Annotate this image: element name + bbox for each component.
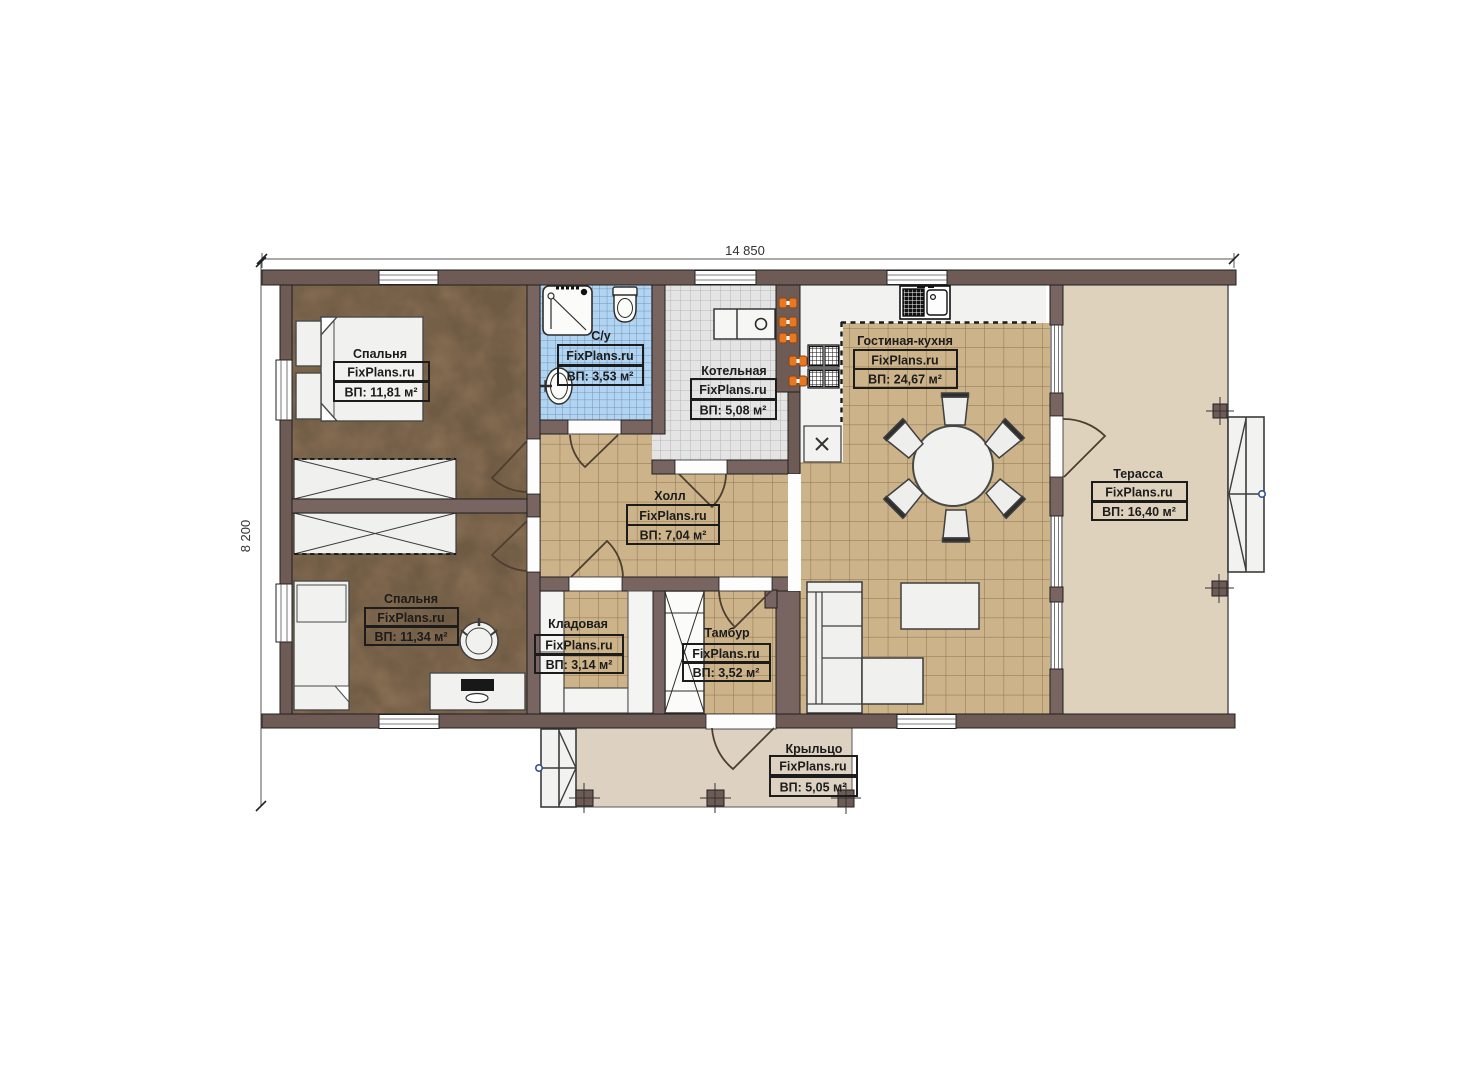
svg-text:FixPlans.ru: FixPlans.ru	[377, 611, 444, 625]
svg-text:Кладовая: Кладовая	[548, 617, 608, 631]
svg-text:Терасса: Терасса	[1113, 467, 1164, 481]
svg-text:Гостиная-кухня: Гостиная-кухня	[857, 334, 953, 348]
svg-text:FixPlans.ru: FixPlans.ru	[347, 366, 414, 380]
svg-text:Спальня: Спальня	[353, 347, 407, 361]
svg-text:FixPlans.ru: FixPlans.ru	[545, 639, 612, 653]
svg-text:Холл: Холл	[654, 489, 685, 503]
svg-text:ВП: 16,40 м²: ВП: 16,40 м²	[1102, 505, 1176, 519]
svg-text:ВП: 5,08 м²: ВП: 5,08 м²	[700, 404, 767, 418]
svg-text:ВП: 3,14 м²: ВП: 3,14 м²	[546, 658, 613, 672]
svg-text:ВП: 5,05 м²: ВП: 5,05 м²	[780, 781, 847, 795]
svg-text:FixPlans.ru: FixPlans.ru	[566, 349, 633, 363]
svg-text:Котельная: Котельная	[701, 364, 766, 378]
svg-text:FixPlans.ru: FixPlans.ru	[692, 647, 759, 661]
svg-text:ВП: 7,04 м²: ВП: 7,04 м²	[640, 529, 707, 543]
svg-text:Спальня: Спальня	[384, 592, 438, 606]
svg-text:ВП: 11,81 м²: ВП: 11,81 м²	[344, 386, 417, 400]
svg-text:FixPlans.ru: FixPlans.ru	[639, 509, 706, 523]
svg-text:FixPlans.ru: FixPlans.ru	[871, 354, 938, 368]
svg-text:ВП: 24,67 м²: ВП: 24,67 м²	[868, 373, 942, 387]
svg-text:Тамбур: Тамбур	[704, 626, 750, 640]
svg-text:FixPlans.ru: FixPlans.ru	[779, 760, 846, 774]
svg-text:FixPlans.ru: FixPlans.ru	[699, 383, 766, 397]
svg-text:Крыльцо: Крыльцо	[786, 742, 843, 756]
svg-text:ВП: 3,52 м²: ВП: 3,52 м²	[693, 666, 760, 680]
svg-text:8 200: 8 200	[238, 520, 253, 553]
svg-text:14 850: 14 850	[725, 243, 765, 258]
svg-text:FixPlans.ru: FixPlans.ru	[1105, 486, 1172, 500]
svg-text:ВП: 3,53 м²: ВП: 3,53 м²	[567, 370, 634, 384]
svg-text:ВП: 11,34 м²: ВП: 11,34 м²	[374, 630, 447, 644]
svg-text:С/у: С/у	[591, 329, 611, 343]
